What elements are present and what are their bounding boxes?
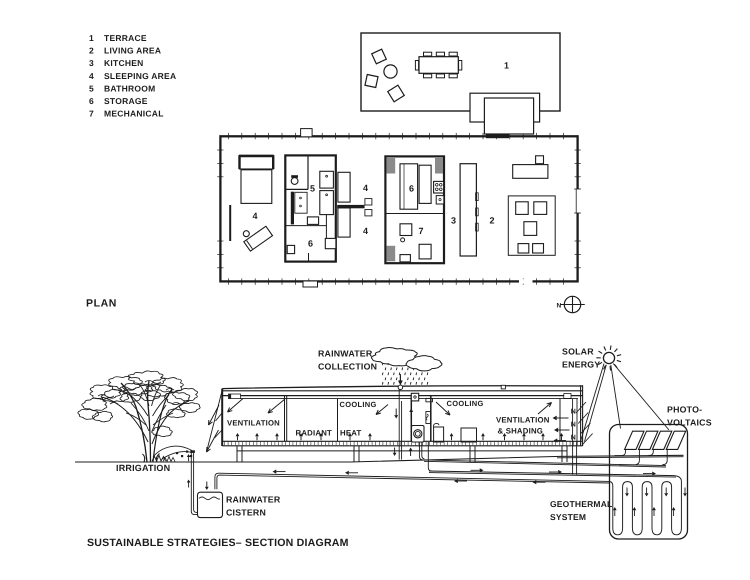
svg-text:COLLECTION: COLLECTION <box>318 362 377 372</box>
svg-text:MECHANICAL: MECHANICAL <box>104 109 164 119</box>
svg-text:VOLTAICS: VOLTAICS <box>667 418 712 428</box>
svg-text:4: 4 <box>253 211 258 221</box>
svg-text:SUSTAINABLE STRATEGIES– SECTIO: SUSTAINABLE STRATEGIES– SECTION DIAGRAM <box>87 537 349 549</box>
svg-text:HEAT: HEAT <box>340 428 361 437</box>
svg-text:LIVING AREA: LIVING AREA <box>104 46 161 56</box>
svg-text:2: 2 <box>490 216 495 226</box>
svg-text:N: N <box>557 303 562 310</box>
svg-text:KITCHEN: KITCHEN <box>104 58 144 68</box>
svg-text:RAINWATER: RAINWATER <box>226 495 281 505</box>
svg-text:STORAGE: STORAGE <box>104 96 148 106</box>
svg-text:4: 4 <box>89 71 94 81</box>
svg-text:VENTILATION: VENTILATION <box>496 415 550 424</box>
svg-text:ENERGY: ENERGY <box>562 360 600 370</box>
svg-text:GEOTHERMAL: GEOTHERMAL <box>550 499 612 509</box>
svg-text:1: 1 <box>504 61 509 71</box>
svg-text:4: 4 <box>363 183 368 193</box>
svg-text:SYSTEM: SYSTEM <box>550 512 586 522</box>
svg-text:6: 6 <box>409 184 414 194</box>
svg-text:CISTERN: CISTERN <box>226 508 266 518</box>
svg-text:TERRACE: TERRACE <box>104 33 147 43</box>
svg-text:3: 3 <box>89 58 94 68</box>
svg-text:N: N <box>571 422 576 429</box>
svg-text:COOLING: COOLING <box>340 400 377 409</box>
svg-text:7: 7 <box>419 226 424 236</box>
svg-text:1: 1 <box>89 33 94 43</box>
svg-text:COOLING: COOLING <box>447 399 484 408</box>
svg-text:& SHADING: & SHADING <box>498 426 544 435</box>
svg-text:5: 5 <box>89 83 94 93</box>
svg-text:5: 5 <box>310 184 315 194</box>
svg-text:BATHROOM: BATHROOM <box>104 83 155 93</box>
svg-text:6: 6 <box>308 239 313 249</box>
svg-text:N: N <box>571 409 576 416</box>
svg-text:SLEEPING AREA: SLEEPING AREA <box>104 71 176 81</box>
svg-text:7: 7 <box>89 109 94 119</box>
svg-text:IRRIGATION: IRRIGATION <box>116 463 170 473</box>
svg-text:RAINWATER: RAINWATER <box>318 349 373 359</box>
svg-text:PLAN: PLAN <box>86 298 117 310</box>
svg-text:VENTILATION: VENTILATION <box>227 418 280 427</box>
svg-text:SOLAR: SOLAR <box>562 347 594 357</box>
svg-text:N: N <box>571 435 576 442</box>
svg-text:4: 4 <box>363 226 368 236</box>
svg-text:2: 2 <box>89 46 94 56</box>
svg-text:RADIANT: RADIANT <box>296 428 333 437</box>
svg-text:3: 3 <box>451 216 456 226</box>
svg-text:6: 6 <box>89 96 94 106</box>
svg-text:PHOTO-: PHOTO- <box>667 405 702 415</box>
